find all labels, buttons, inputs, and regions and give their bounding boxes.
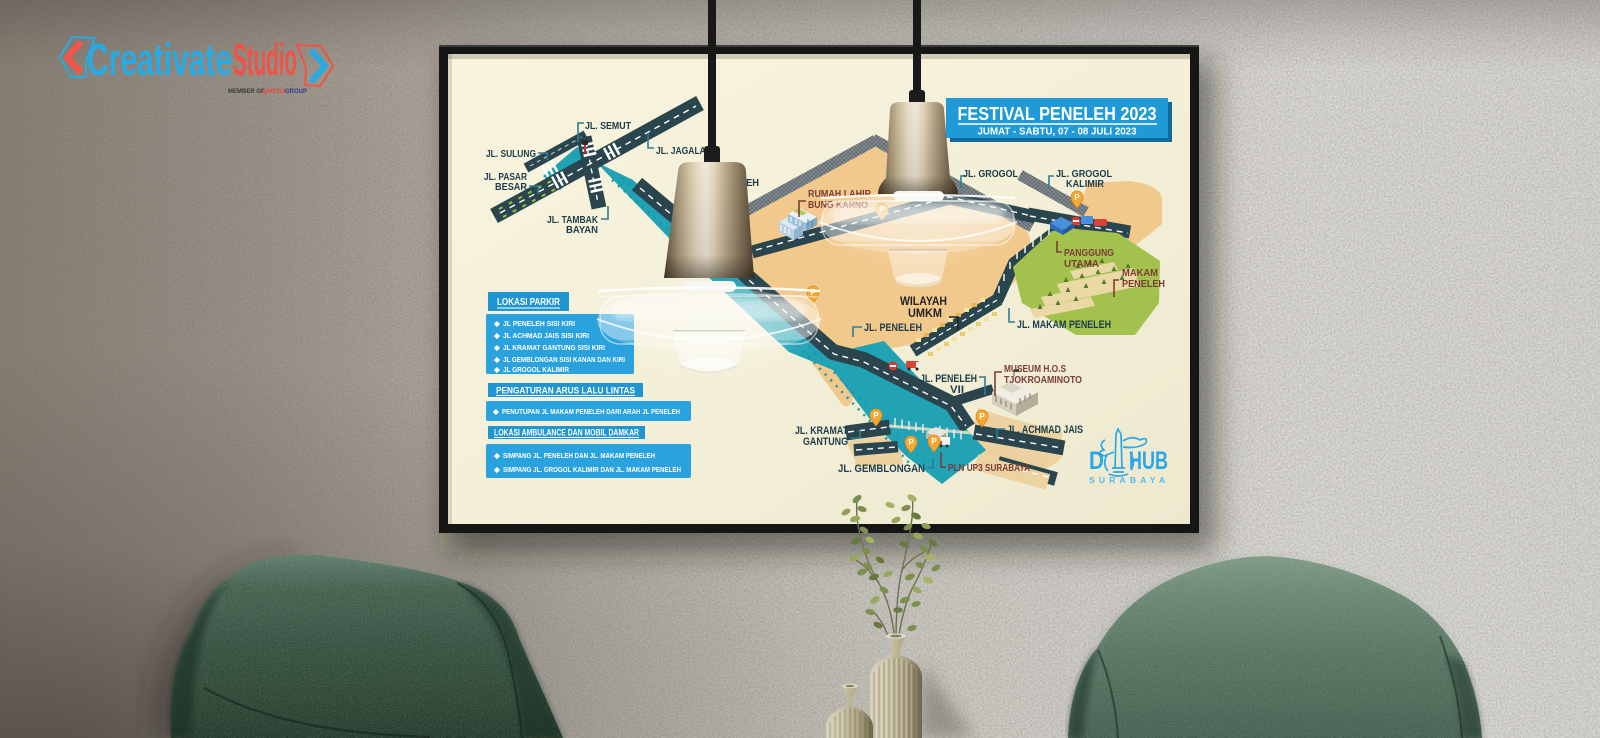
svg-text:BESAR: BESAR <box>495 181 527 193</box>
svg-text:PENELEH: PENELEH <box>1122 278 1165 290</box>
svg-text:JL. SULUNG: JL. SULUNG <box>486 148 536 160</box>
svg-text:LOKASI AMBULANCE DAN MOBIL DAM: LOKASI AMBULANCE DAN MOBIL DAMKAR <box>494 428 640 438</box>
svg-text:UTAMA: UTAMA <box>1064 258 1099 270</box>
svg-text:FESTIVAL PENELEH 2023: FESTIVAL PENELEH 2023 <box>958 103 1157 124</box>
svg-text:JL. PENELEH: JL. PENELEH <box>864 322 922 334</box>
svg-text:Creativate: Creativate <box>87 34 232 85</box>
svg-text:GROUP: GROUP <box>285 89 307 95</box>
svg-text:TJOKROAMINOTO: TJOKROAMINOTO <box>1004 374 1082 386</box>
svg-text:SIMPANG JL. PENELEH DAN JL. MA: SIMPANG JL. PENELEH DAN JL. MAKAM PENELE… <box>503 451 655 460</box>
svg-text:JL. GEMBLONGAN: JL. GEMBLONGAN <box>838 463 925 475</box>
svg-text:P: P <box>979 412 985 421</box>
svg-text:KALIMIR: KALIMIR <box>1066 178 1104 190</box>
svg-text:VII: VII <box>950 384 964 396</box>
svg-text:PENUTUPAN JL MAKAM PENELEH DAR: PENUTUPAN JL MAKAM PENELEH DARI ARAH JL … <box>502 407 680 416</box>
svg-text:P: P <box>873 411 879 420</box>
svg-text:P: P <box>1074 193 1080 202</box>
svg-text:Studio: Studio <box>233 34 297 85</box>
svg-text:JL GEMBLONGAN SISI KANAN DAN K: JL GEMBLONGAN SISI KANAN DAN KIRI <box>503 355 625 364</box>
svg-text:JL KRAMAT GANTUNG SISI KIRI: JL KRAMAT GANTUNG SISI KIRI <box>503 343 605 352</box>
svg-text:BAYAN: BAYAN <box>566 224 598 236</box>
svg-text:UMKM: UMKM <box>908 308 942 320</box>
svg-text:MEMBER OF: MEMBER OF <box>228 89 265 95</box>
svg-text:JL ACHMAD JAIS SISI KIRI: JL ACHMAD JAIS SISI KIRI <box>503 331 589 340</box>
svg-text:HUB: HUB <box>1129 447 1168 475</box>
svg-text:LOKASI PARKIR: LOKASI PARKIR <box>497 296 560 308</box>
svg-text:JL. GROGOL: JL. GROGOL <box>963 168 1018 180</box>
svg-text:gMEGA: gMEGA <box>262 88 287 95</box>
svg-text:SURABAYA: SURABAYA <box>1089 475 1169 485</box>
svg-text:JL. MAKAM PENELEH: JL. MAKAM PENELEH <box>1017 319 1111 331</box>
svg-text:JL. SEMUT: JL. SEMUT <box>585 120 631 132</box>
svg-text:JL. PENELEH: JL. PENELEH <box>920 373 977 385</box>
svg-text:P: P <box>908 438 914 447</box>
svg-text:JL PENELEH SISI KIRI: JL PENELEH SISI KIRI <box>503 319 575 328</box>
svg-text:JUMAT - SABTU, 07 - 08 JULI 20: JUMAT - SABTU, 07 - 08 JULI 2023 <box>978 126 1137 138</box>
svg-text:JL. JAGALAN: JL. JAGALAN <box>656 145 712 157</box>
svg-text:JL GROGOL KALIMIR: JL GROGOL KALIMIR <box>503 365 569 374</box>
svg-text:P: P <box>931 437 937 446</box>
svg-text:GANTUNG: GANTUNG <box>803 436 848 448</box>
svg-text:JL. ACHMAD JAIS: JL. ACHMAD JAIS <box>1007 424 1083 436</box>
svg-text:SIMPANG JL. GROGOL KALIMIR DAN: SIMPANG JL. GROGOL KALIMIR DAN JL. MAKAM… <box>503 465 681 474</box>
svg-text:PENGATURAN ARUS LALU LINTAS: PENGATURAN ARUS LALU LINTAS <box>496 386 635 397</box>
svg-text:PLN UP3 SURABAYA: PLN UP3 SURABAYA <box>948 462 1030 474</box>
svg-text:WILAYAH: WILAYAH <box>900 296 947 308</box>
